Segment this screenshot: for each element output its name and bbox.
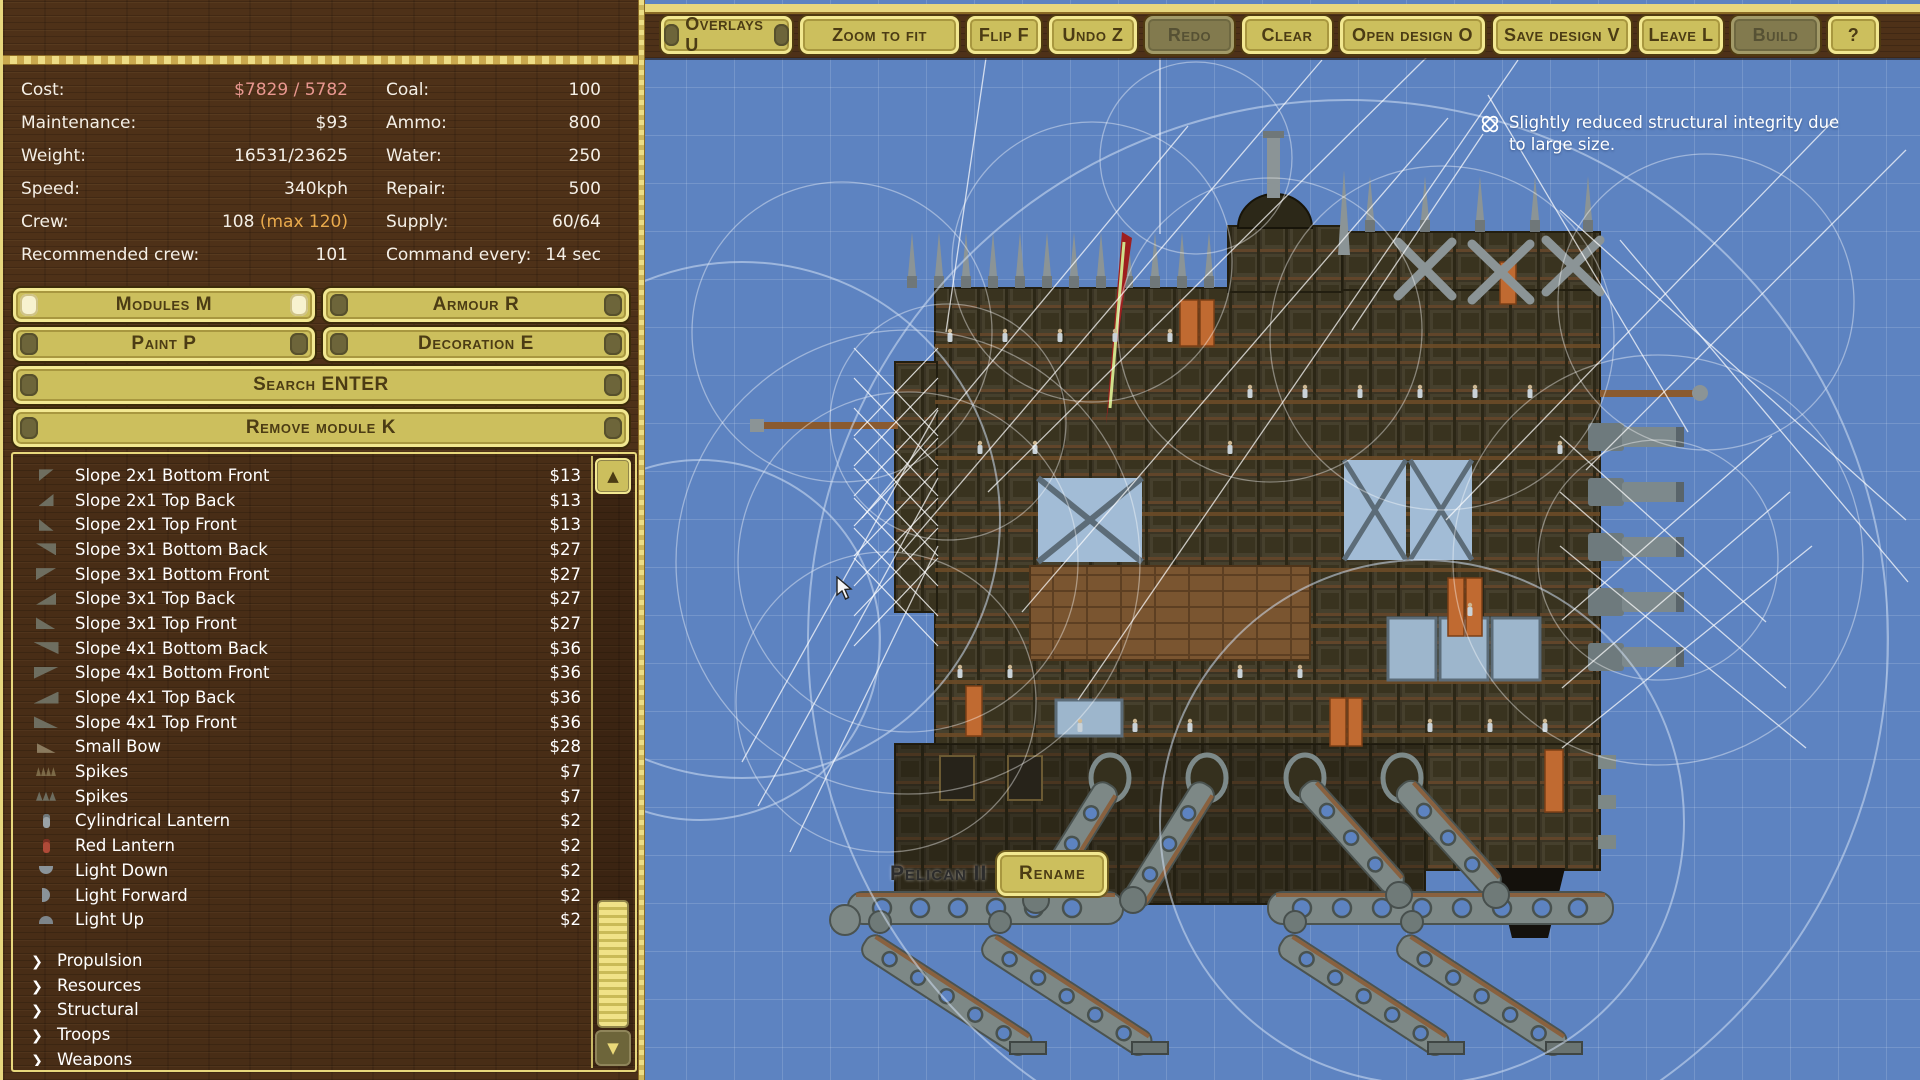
knob-icon: [330, 294, 348, 316]
design-canvas[interactable]: Slightly reduced structural integrity du…: [645, 0, 1920, 1080]
knob-icon: [604, 374, 622, 396]
stat-row: Cost: $7829 / 5782 Coal: 100: [3, 74, 641, 107]
red-lantern-icon: [43, 839, 50, 853]
module-rows: Slope 2x1 Bottom Front $13 Slope 2x1 Top…: [17, 458, 587, 1066]
top-toolbar: Overlays U Zoom to fit Flip F Undo Z Red…: [645, 4, 1920, 58]
module-list-item[interactable]: Slope 4x1 Top Back $36: [17, 685, 587, 710]
active-knob-icon: [290, 294, 308, 316]
slope-4x1-bottom-front-icon: [34, 667, 59, 679]
modules-tab-button[interactable]: Modules M: [13, 288, 315, 322]
overlays-right-knob-icon: [774, 24, 789, 46]
redo-button: Redo: [1145, 16, 1234, 54]
slope-2x1-bottom-front-icon: [39, 469, 54, 481]
module-list-item[interactable]: Slope 4x1 Bottom Front $36: [17, 661, 587, 686]
light-forward-icon: [42, 888, 50, 902]
slope-3x1-top-back-icon: [36, 593, 56, 605]
stat-row: Speed: 340kph Repair: 500: [3, 173, 641, 206]
chevron-right-icon: [17, 1000, 57, 1019]
module-list-item[interactable]: Light Up $2: [17, 907, 587, 932]
knob-icon: [20, 374, 38, 396]
ship-name-row: Pelican II Rename: [890, 852, 1107, 896]
knob-icon: [20, 333, 38, 355]
category-weapons[interactable]: Weapons: [17, 1047, 587, 1066]
rename-button[interactable]: Rename: [997, 852, 1107, 896]
knob-icon: [20, 417, 38, 439]
category-resources[interactable]: Resources: [17, 973, 587, 998]
small-bow-icon: [37, 741, 56, 753]
slope-3x1-bottom-back-icon: [36, 543, 56, 555]
slope-3x1-top-front-icon: [36, 617, 56, 629]
ship-name: Pelican II: [890, 862, 987, 886]
stat-row: Recommended crew: 101 Command every: 14 …: [3, 239, 641, 272]
slope-2x1-top-back-icon: [39, 494, 54, 506]
module-list-item[interactable]: Slope 3x1 Bottom Front $27: [17, 562, 587, 587]
help-button[interactable]: ?: [1828, 16, 1879, 54]
editor-side-panel: Cost: $7829 / 5782 Coal: 100 Maintenance…: [0, 0, 645, 1080]
category-propulsion[interactable]: Propulsion: [17, 948, 587, 973]
chevron-right-icon: [17, 951, 57, 970]
module-list: Slope 2x1 Bottom Front $13 Slope 2x1 Top…: [11, 452, 637, 1072]
active-knob-icon: [20, 294, 38, 316]
stat-row: Weight: 16531/23625 Water: 250: [3, 140, 641, 173]
module-list-item[interactable]: Small Bow $28: [17, 735, 587, 760]
slope-4x1-top-front-icon: [34, 716, 59, 728]
module-list-item[interactable]: Slope 3x1 Bottom Back $27: [17, 537, 587, 562]
module-list-item[interactable]: Red Lantern $2: [17, 833, 587, 858]
module-list-item[interactable]: Cylindrical Lantern $2: [17, 809, 587, 834]
paint-tab-button[interactable]: Paint P: [13, 327, 315, 361]
spikes-icon: [36, 792, 56, 801]
overlays-left-knob-icon: [664, 24, 679, 46]
ship-tower: [1228, 131, 1350, 292]
overlays-button[interactable]: Overlays U: [661, 16, 792, 54]
structural-warning-text: Slightly reduced structural integrity du…: [1509, 112, 1851, 156]
module-list-item[interactable]: Slope 3x1 Top Front $27: [17, 611, 587, 636]
open-design-button[interactable]: Open design O: [1340, 16, 1485, 54]
flip-button[interactable]: Flip F: [967, 16, 1041, 54]
module-list-item[interactable]: Slope 2x1 Top Back $13: [17, 488, 587, 513]
search-button[interactable]: Search ENTER: [13, 366, 629, 404]
slope-4x1-bottom-back-icon: [34, 642, 59, 654]
zoom-to-fit-button[interactable]: Zoom to fit: [800, 16, 959, 54]
slope-2x1-top-front-icon: [39, 519, 54, 531]
module-list-item[interactable]: Spikes $7: [17, 784, 587, 809]
light-down-icon: [39, 866, 53, 874]
leave-button[interactable]: Leave L: [1639, 16, 1723, 54]
build-button: Build: [1731, 16, 1820, 54]
category-rows: Propulsion Resources Structural Troops: [17, 948, 587, 1066]
spikes-icon: [36, 767, 56, 776]
remove-module-button[interactable]: Remove module K: [13, 409, 629, 447]
module-list-item[interactable]: Slope 4x1 Top Front $36: [17, 710, 587, 735]
module-list-item[interactable]: Slope 3x1 Top Back $27: [17, 586, 587, 611]
category-structural[interactable]: Structural: [17, 997, 587, 1022]
category-troops[interactable]: Troops: [17, 1022, 587, 1047]
module-list-item[interactable]: Light Forward $2: [17, 883, 587, 908]
structural-warning: Slightly reduced structural integrity du…: [1479, 112, 1851, 156]
stat-row: Crew: 108 (max 120) Supply: 60/64: [3, 206, 641, 239]
knob-icon: [604, 294, 622, 316]
chevron-right-icon: [17, 1025, 57, 1044]
chevron-right-icon: [17, 1050, 57, 1066]
undo-button[interactable]: Undo Z: [1049, 16, 1137, 54]
module-list-item[interactable]: Slope 2x1 Top Front $13: [17, 512, 587, 537]
scrollbar-thumb[interactable]: [597, 900, 629, 1028]
decoration-tab-button[interactable]: Decoration E: [323, 327, 629, 361]
crew-max-value: (max 120): [254, 212, 348, 232]
module-list-item[interactable]: Light Down $2: [17, 858, 587, 883]
save-design-button[interactable]: Save design V: [1493, 16, 1631, 54]
stat-row: Maintenance: $93 Ammo: 800: [3, 107, 641, 140]
scroll-down-button[interactable]: [595, 1030, 631, 1066]
structural-integrity-icon: [1479, 113, 1501, 135]
knob-icon: [330, 333, 348, 355]
clear-button[interactable]: Clear: [1242, 16, 1332, 54]
knob-icon: [290, 333, 308, 355]
knob-icon: [604, 417, 622, 439]
module-list-scrollbar[interactable]: [591, 456, 633, 1068]
mouse-cursor: [836, 576, 858, 600]
crew-value: 108 (max 120): [222, 206, 348, 239]
gun-battery: [1588, 423, 1684, 671]
scroll-up-button[interactable]: [595, 458, 631, 494]
knob-icon: [604, 333, 622, 355]
panel-right-border: [638, 0, 645, 1080]
panel-divider: [3, 55, 641, 65]
light-up-icon: [39, 916, 53, 924]
armour-tab-button[interactable]: Armour R: [323, 288, 629, 322]
ship-stats: Cost: $7829 / 5782 Coal: 100 Maintenance…: [3, 74, 641, 272]
chevron-right-icon: [17, 976, 57, 995]
cylindrical-lantern-icon: [43, 814, 50, 828]
ship-blueprint: [645, 0, 1920, 1080]
module-list-item[interactable]: Slope 4x1 Bottom Back $36: [17, 636, 587, 661]
module-list-item[interactable]: Spikes $7: [17, 759, 587, 784]
airship-design-editor: Slightly reduced structural integrity du…: [0, 0, 1920, 1080]
slope-4x1-top-back-icon: [34, 692, 59, 704]
cost-value: $7829 / 5782: [234, 74, 348, 107]
module-list-item[interactable]: Slope 2x1 Bottom Front $13: [17, 463, 587, 488]
slope-3x1-bottom-front-icon: [36, 568, 56, 580]
